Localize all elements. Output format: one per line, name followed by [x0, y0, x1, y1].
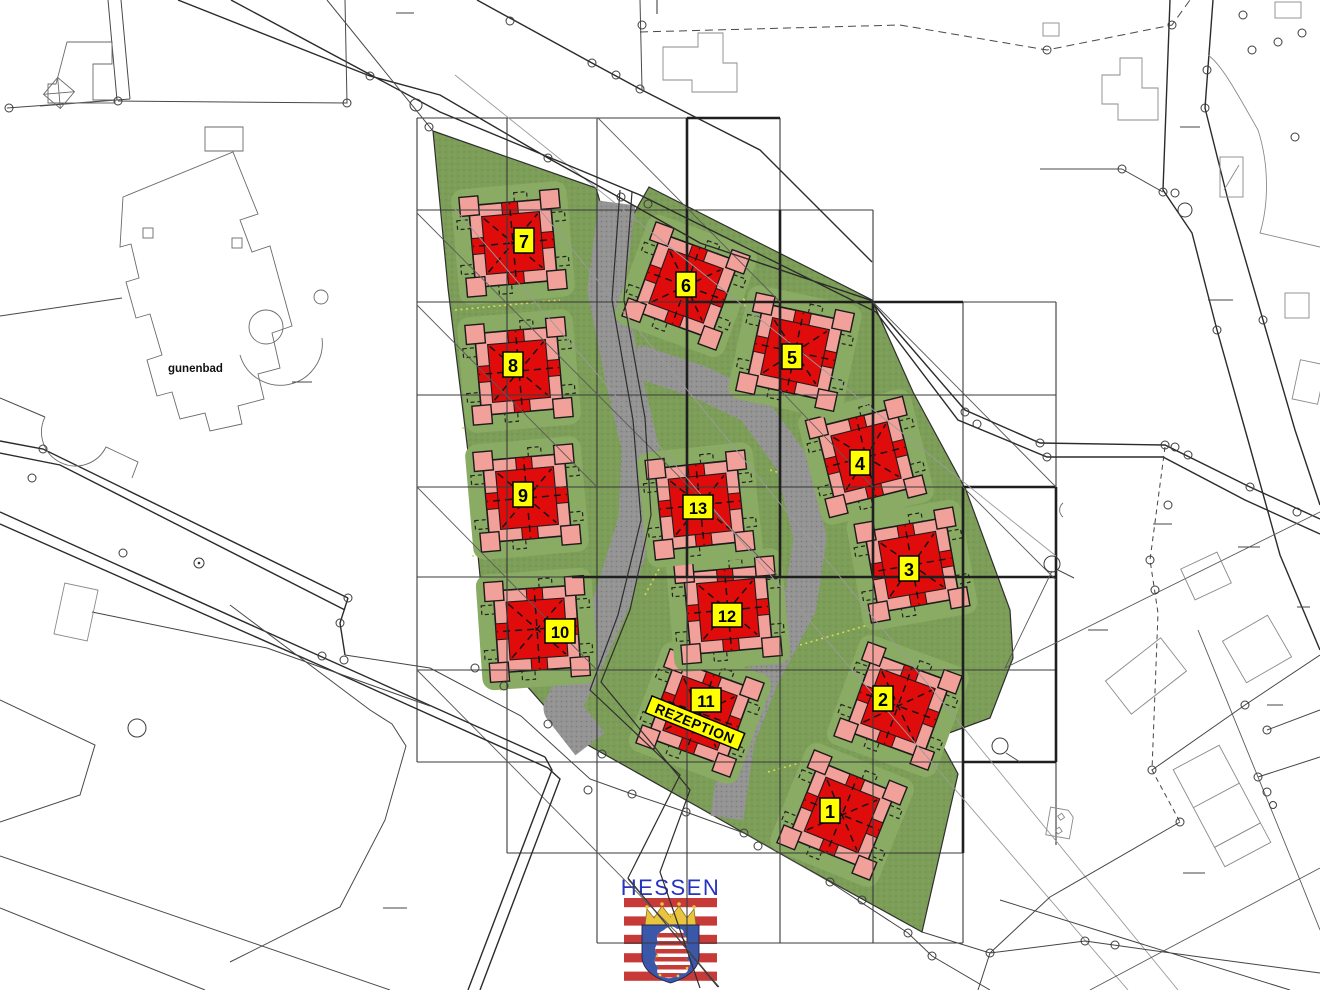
svg-text:5: 5 — [787, 348, 797, 368]
svg-text:11: 11 — [697, 693, 714, 711]
svg-text:2: 2 — [878, 690, 888, 710]
building-10-label[interactable]: 10 — [545, 619, 575, 643]
hessen-logo: HESSEN — [621, 875, 720, 990]
building-10[interactable] — [475, 567, 599, 691]
building-6-label[interactable]: 6 — [676, 272, 696, 297]
building-4-label[interactable]: 4 — [850, 450, 870, 475]
building-7[interactable] — [450, 180, 576, 306]
svg-text:10: 10 — [551, 624, 569, 642]
svg-text:13: 13 — [689, 500, 707, 518]
svg-text:6: 6 — [681, 276, 691, 296]
building-1-label[interactable]: 1 — [820, 798, 840, 823]
area-label-gunenbad: gunenbad — [168, 363, 223, 375]
svg-text:8: 8 — [508, 356, 518, 376]
svg-text:1: 1 — [825, 802, 835, 822]
building-5-label[interactable]: 5 — [782, 344, 802, 369]
building-2-label[interactable]: 2 — [873, 686, 893, 711]
site-plan-page: HESSEN — [0, 0, 1320, 990]
svg-text:9: 9 — [518, 486, 528, 506]
building-12-label[interactable]: 12 — [712, 603, 742, 627]
site-plan-map: HESSEN — [0, 0, 1320, 990]
building-3-label[interactable]: 3 — [899, 556, 919, 581]
building-9-label[interactable]: 9 — [513, 482, 533, 507]
svg-text:4: 4 — [855, 454, 865, 474]
svg-text:7: 7 — [519, 232, 529, 252]
svg-text:12: 12 — [718, 608, 736, 626]
svg-text:3: 3 — [904, 560, 914, 580]
building-13-label[interactable]: 13 — [683, 495, 713, 519]
building-11-label[interactable]: 11 — [691, 688, 721, 712]
building-8-label[interactable]: 8 — [503, 352, 523, 377]
building-7-label[interactable]: 7 — [514, 228, 534, 253]
